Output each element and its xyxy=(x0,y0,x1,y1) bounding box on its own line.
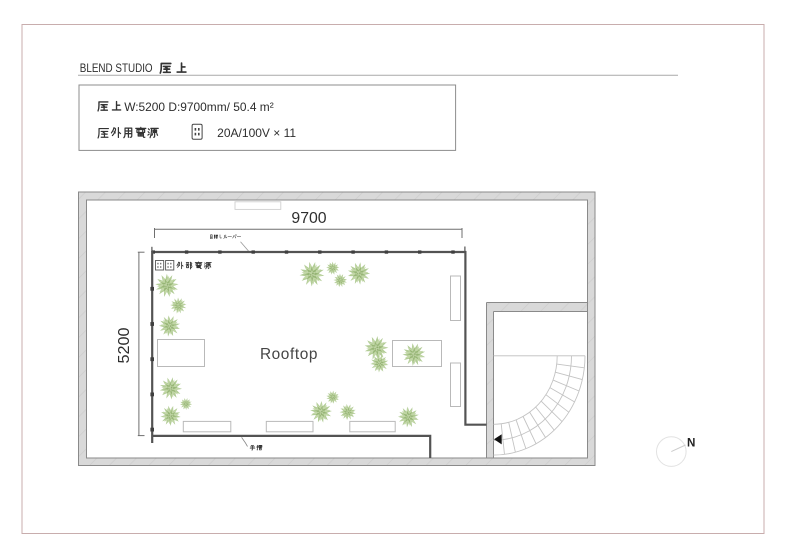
svg-text:5200: 5200 xyxy=(116,327,133,363)
svg-text:N: N xyxy=(687,437,695,450)
svg-text:BLEND STUDIO: BLEND STUDIO xyxy=(80,61,153,75)
svg-text:Rooftop: Rooftop xyxy=(260,346,318,363)
svg-text:9700: 9700 xyxy=(291,210,327,227)
svg-text:20A/100V × 11: 20A/100V × 11 xyxy=(217,126,296,140)
svg-text:W:5200 D:9700mm/ 50.4 m²: W:5200 D:9700mm/ 50.4 m² xyxy=(124,100,274,114)
